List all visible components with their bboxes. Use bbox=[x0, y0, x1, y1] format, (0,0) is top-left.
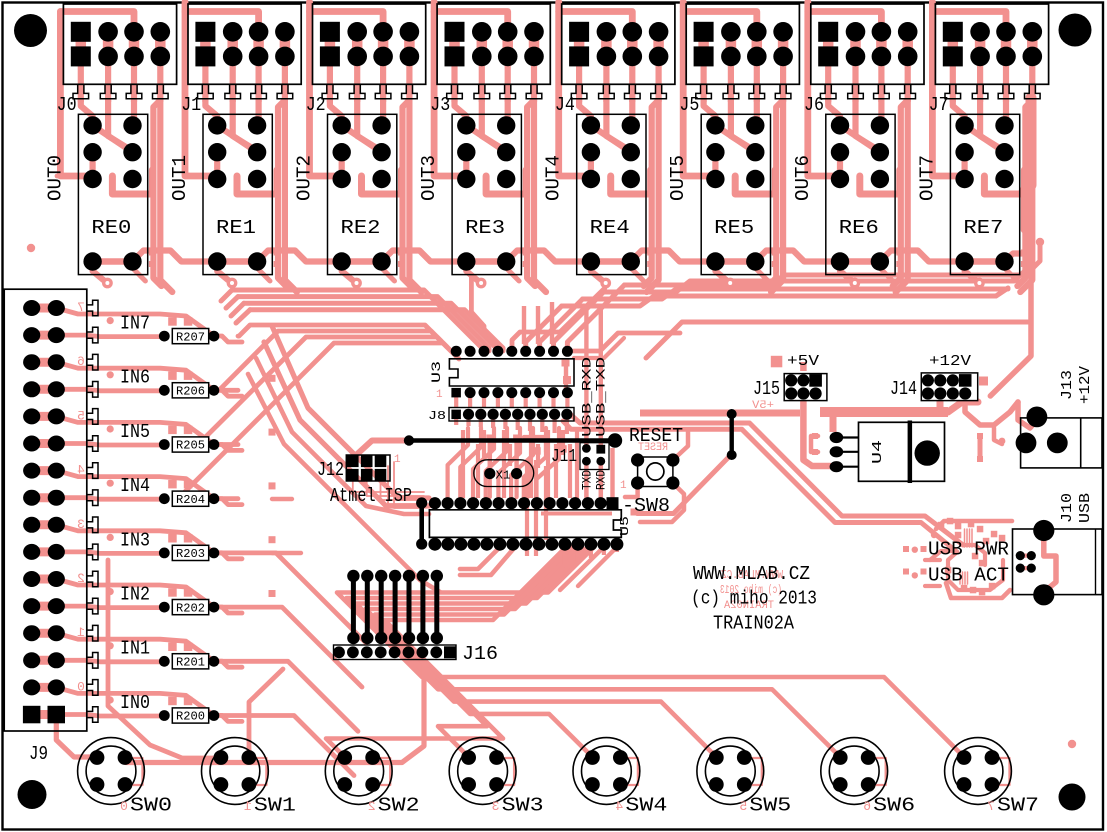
svg-text:RXD: RXD bbox=[594, 470, 609, 490]
svg-text:OUT7: OUT7 bbox=[916, 155, 938, 201]
svg-text:OUT1: OUT1 bbox=[169, 155, 191, 201]
svg-text:SW1: SW1 bbox=[254, 795, 296, 817]
svg-text:R202: R202 bbox=[176, 602, 205, 615]
svg-text:2: 2 bbox=[77, 571, 85, 586]
svg-text:TXD: TXD bbox=[580, 470, 595, 490]
svg-text:RE7: RE7 bbox=[963, 217, 1003, 239]
svg-text:U3: U3 bbox=[429, 361, 444, 383]
svg-text:-SW8: -SW8 bbox=[622, 495, 670, 517]
svg-text:RE0: RE0 bbox=[91, 217, 131, 239]
svg-text:SW7: SW7 bbox=[997, 795, 1039, 817]
svg-text:Atmel ISP: Atmel ISP bbox=[330, 485, 412, 507]
svg-text:J4: J4 bbox=[555, 94, 575, 116]
svg-text:IN1: IN1 bbox=[120, 638, 150, 660]
svg-text:R200: R200 bbox=[176, 711, 205, 724]
svg-text:+5V: +5V bbox=[752, 400, 774, 412]
svg-text:J7: J7 bbox=[929, 94, 949, 116]
svg-text:7: 7 bbox=[77, 300, 85, 315]
svg-text:IN7: IN7 bbox=[120, 313, 150, 335]
svg-text:1: 1 bbox=[77, 625, 85, 640]
svg-text:SW0: SW0 bbox=[130, 795, 172, 817]
svg-text:RE1: RE1 bbox=[216, 217, 256, 239]
svg-text:5: 5 bbox=[77, 408, 85, 423]
svg-text:OUT2: OUT2 bbox=[294, 155, 316, 201]
svg-text:RE6: RE6 bbox=[839, 217, 879, 239]
svg-text:X1: X1 bbox=[496, 470, 511, 483]
svg-text:R206: R206 bbox=[176, 386, 205, 399]
svg-text:4: 4 bbox=[77, 463, 85, 478]
svg-text:OUT0: OUT0 bbox=[44, 155, 66, 201]
svg-text:J13: J13 bbox=[1059, 370, 1076, 400]
svg-text:J12: J12 bbox=[317, 459, 344, 481]
svg-text:SW2: SW2 bbox=[378, 795, 420, 817]
svg-text:+12V: +12V bbox=[1077, 366, 1094, 404]
svg-text:R203: R203 bbox=[176, 548, 205, 561]
svg-text:J3: J3 bbox=[430, 94, 450, 116]
svg-text:RE2: RE2 bbox=[341, 217, 381, 239]
svg-text:J5: J5 bbox=[679, 94, 699, 116]
svg-text:1: 1 bbox=[436, 389, 443, 401]
svg-text:OUT5: OUT5 bbox=[667, 155, 689, 201]
svg-text:J14: J14 bbox=[890, 378, 917, 400]
svg-text:2: 2 bbox=[368, 799, 376, 814]
svg-text:1: 1 bbox=[394, 454, 401, 466]
svg-text:J9: J9 bbox=[29, 743, 48, 765]
svg-text:OUT3: OUT3 bbox=[418, 155, 440, 201]
svg-text:R205: R205 bbox=[176, 440, 205, 453]
svg-text:R201: R201 bbox=[176, 657, 205, 670]
svg-text:+5V: +5V bbox=[787, 353, 819, 370]
svg-text:0: 0 bbox=[77, 679, 85, 694]
svg-text:7: 7 bbox=[987, 799, 995, 814]
svg-text:+12V: +12V bbox=[929, 353, 971, 370]
svg-text:(c) miho 2013: (c) miho 2013 bbox=[691, 588, 817, 610]
svg-text:SW5: SW5 bbox=[749, 795, 791, 817]
svg-text:SW4: SW4 bbox=[625, 795, 667, 817]
svg-text:J16: J16 bbox=[462, 643, 498, 665]
svg-text:IN2: IN2 bbox=[120, 584, 150, 606]
svg-text:USB_RXD: USB_RXD bbox=[580, 357, 595, 437]
svg-text:SW3: SW3 bbox=[502, 795, 544, 817]
svg-text:IN5: IN5 bbox=[120, 421, 150, 443]
svg-text:J1: J1 bbox=[181, 94, 201, 116]
svg-text:USB_TXD: USB_TXD bbox=[594, 357, 609, 437]
svg-text:4: 4 bbox=[615, 799, 623, 814]
svg-text:USB: USB bbox=[1077, 493, 1094, 523]
svg-text:J6: J6 bbox=[804, 94, 824, 116]
svg-text:OUT4: OUT4 bbox=[543, 155, 565, 201]
svg-text:J0: J0 bbox=[57, 94, 77, 116]
svg-text:1: 1 bbox=[244, 799, 252, 814]
svg-text:6: 6 bbox=[863, 799, 871, 814]
svg-text:IN3: IN3 bbox=[120, 529, 150, 551]
svg-text:J8: J8 bbox=[428, 409, 446, 423]
svg-text:RE5: RE5 bbox=[714, 217, 754, 239]
svg-text:U4: U4 bbox=[870, 440, 886, 464]
svg-text:WWW.MLAB.CZ: WWW.MLAB.CZ bbox=[693, 563, 810, 585]
svg-text:J2: J2 bbox=[306, 94, 326, 116]
svg-text:0: 0 bbox=[120, 799, 128, 814]
svg-text:J11: J11 bbox=[551, 447, 577, 467]
svg-text:TRAIN02A: TRAIN02A bbox=[713, 613, 795, 635]
svg-text:RE4: RE4 bbox=[590, 217, 630, 239]
svg-text:USB ACT: USB ACT bbox=[928, 565, 1009, 587]
svg-text:OUT6: OUT6 bbox=[792, 155, 814, 201]
svg-text:IN6: IN6 bbox=[120, 367, 150, 389]
svg-text:RESET: RESET bbox=[629, 425, 683, 447]
svg-text:J15: J15 bbox=[753, 378, 780, 400]
svg-text:R207: R207 bbox=[176, 331, 205, 344]
svg-text:IN4: IN4 bbox=[120, 475, 150, 497]
svg-text:3: 3 bbox=[492, 799, 500, 814]
svg-text:SW6: SW6 bbox=[873, 795, 915, 817]
svg-text:U5: U5 bbox=[618, 516, 632, 536]
svg-text:3: 3 bbox=[77, 517, 85, 532]
svg-text:IN0: IN0 bbox=[120, 692, 150, 714]
svg-text:1: 1 bbox=[620, 480, 627, 492]
svg-text:J10: J10 bbox=[1059, 493, 1076, 523]
svg-text:USB PWR: USB PWR bbox=[928, 539, 1009, 561]
svg-text:RE3: RE3 bbox=[465, 217, 505, 239]
svg-text:6: 6 bbox=[77, 354, 85, 369]
svg-text:R204: R204 bbox=[176, 494, 205, 507]
svg-text:5: 5 bbox=[739, 799, 747, 814]
